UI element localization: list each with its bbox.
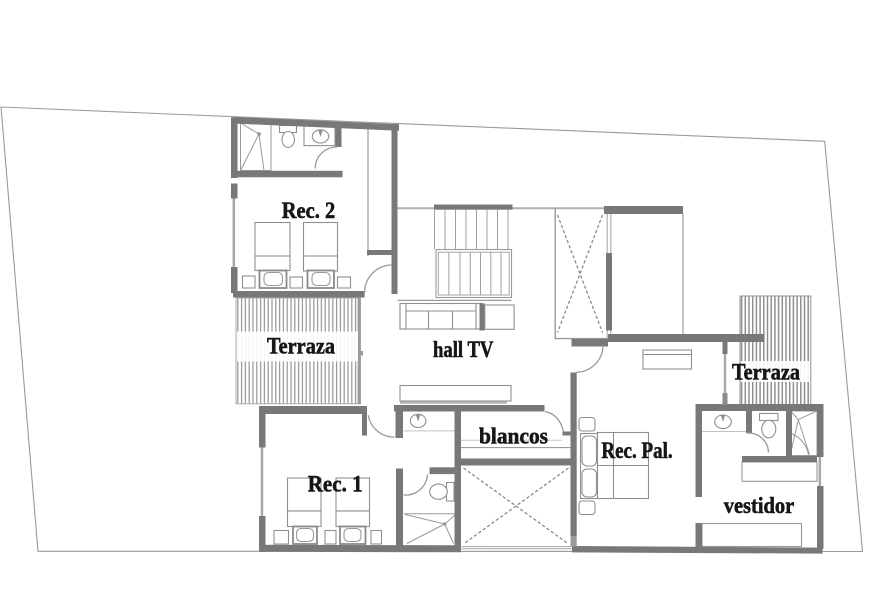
svg-text:blancos: blancos [479,424,548,449]
svg-text:Terraza: Terraza [267,333,335,358]
svg-text:Rec. Pal.: Rec. Pal. [601,438,672,463]
svg-text:hall TV: hall TV [433,337,494,362]
svg-text:Terraza: Terraza [732,360,800,385]
svg-text:Rec. 1: Rec. 1 [308,472,363,497]
svg-text:Rec. 2: Rec. 2 [282,198,336,223]
svg-text:vestidor: vestidor [724,493,795,518]
